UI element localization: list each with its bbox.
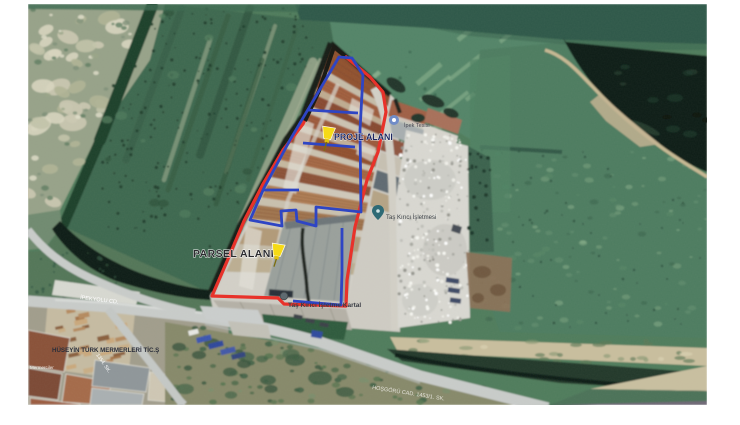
svg-text:Taş Kırıcı İşletmesi: Taş Kırıcı İşletmesi [386,214,436,221]
svg-text:PROJE ALANI: PROJE ALANI [334,132,393,142]
svg-text:HÜSEYİN TÜRK MERMERLERİ TİC.Ş: HÜSEYİN TÜRK MERMERLERİ TİC.Ş [52,347,159,354]
svg-text:Mermerciler: Mermerciler [30,365,54,370]
svg-text:Taş Kırıcı İşletme Kartal: Taş Kırıcı İşletme Kartal [288,301,361,309]
svg-text:İpek Tesisi: İpek Tesisi [404,122,430,129]
svg-text:PARSEL ALANI: PARSEL ALANI [193,248,274,260]
